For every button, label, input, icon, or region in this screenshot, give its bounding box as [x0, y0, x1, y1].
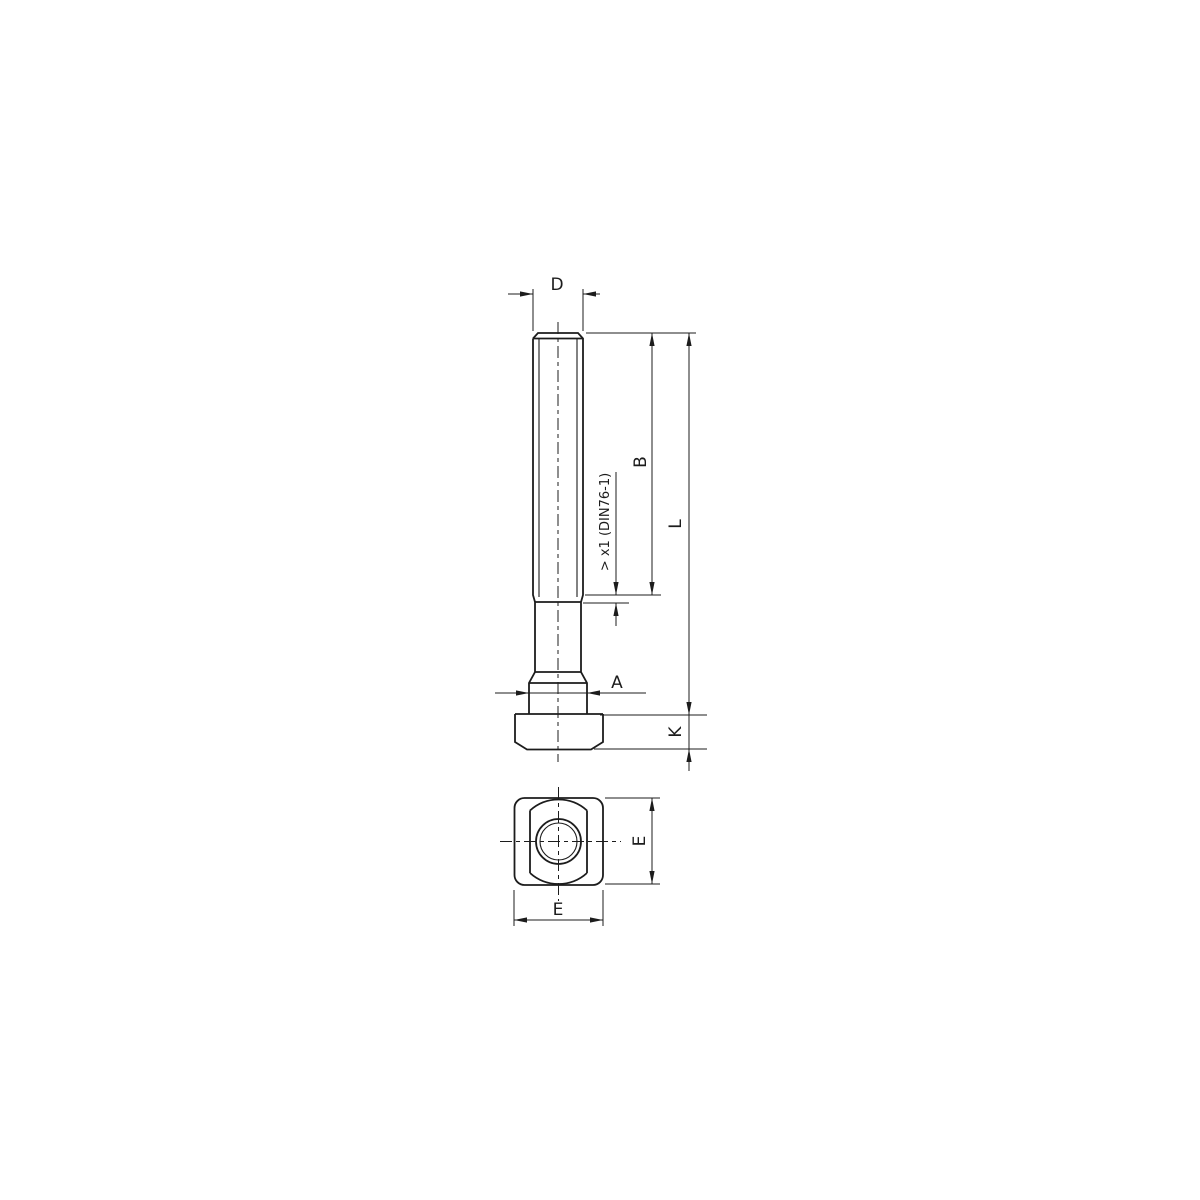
dim-b-arrow-bottom [649, 582, 654, 595]
dim-e-bottom-arrow-left [514, 917, 527, 922]
dim-label-l: L [666, 519, 686, 529]
dim-x1-extension-lines [583, 595, 661, 603]
dim-label-e-side: E [630, 836, 650, 847]
dim-e-side-arrow-bottom [649, 871, 654, 884]
dim-label-e-bottom: E [553, 900, 564, 920]
dim-label-b: B [631, 456, 651, 468]
dim-thread-runout: > x1 (DIN76-1) [583, 472, 661, 626]
dim-b-arrow-top [649, 333, 654, 346]
dim-k-arrow-up [686, 749, 691, 762]
dim-a-arrow-left [516, 690, 529, 695]
dim-x1-arrow-up [613, 603, 618, 616]
dim-l-arrow-bottom [686, 702, 691, 715]
dim-head-height: K [594, 715, 707, 762]
dim-label-d: D [550, 275, 563, 295]
dim-head-size-bottom: E [514, 890, 603, 926]
dim-a-arrow-right [587, 690, 600, 695]
front-view [515, 322, 603, 762]
dim-e-side-arrow-top [649, 798, 654, 811]
bottom-view [500, 787, 621, 901]
dim-x1-arrow-down [613, 582, 618, 595]
dim-thread-length: B [631, 333, 655, 595]
dim-d-arrow-right [583, 291, 596, 296]
dim-label-x1: > x1 (DIN76-1) [598, 473, 613, 571]
dim-total-length: L [666, 333, 692, 771]
dim-e-bottom-arrow-right [590, 917, 603, 922]
dim-label-k: K [666, 726, 686, 738]
dim-label-a: A [611, 673, 623, 693]
dim-thread-diameter: D [508, 275, 600, 331]
dim-k-extension-lines [594, 715, 707, 749]
dim-d-arrow-left [520, 291, 533, 296]
dim-l-arrow-top [686, 333, 691, 346]
technical-drawing: D B L > x1 (DIN76-1) [0, 0, 1200, 1200]
dim-collar-diameter: A [495, 673, 646, 696]
drawing-page: D B L > x1 (DIN76-1) [0, 0, 1200, 1200]
t-head-outline [515, 714, 603, 750]
